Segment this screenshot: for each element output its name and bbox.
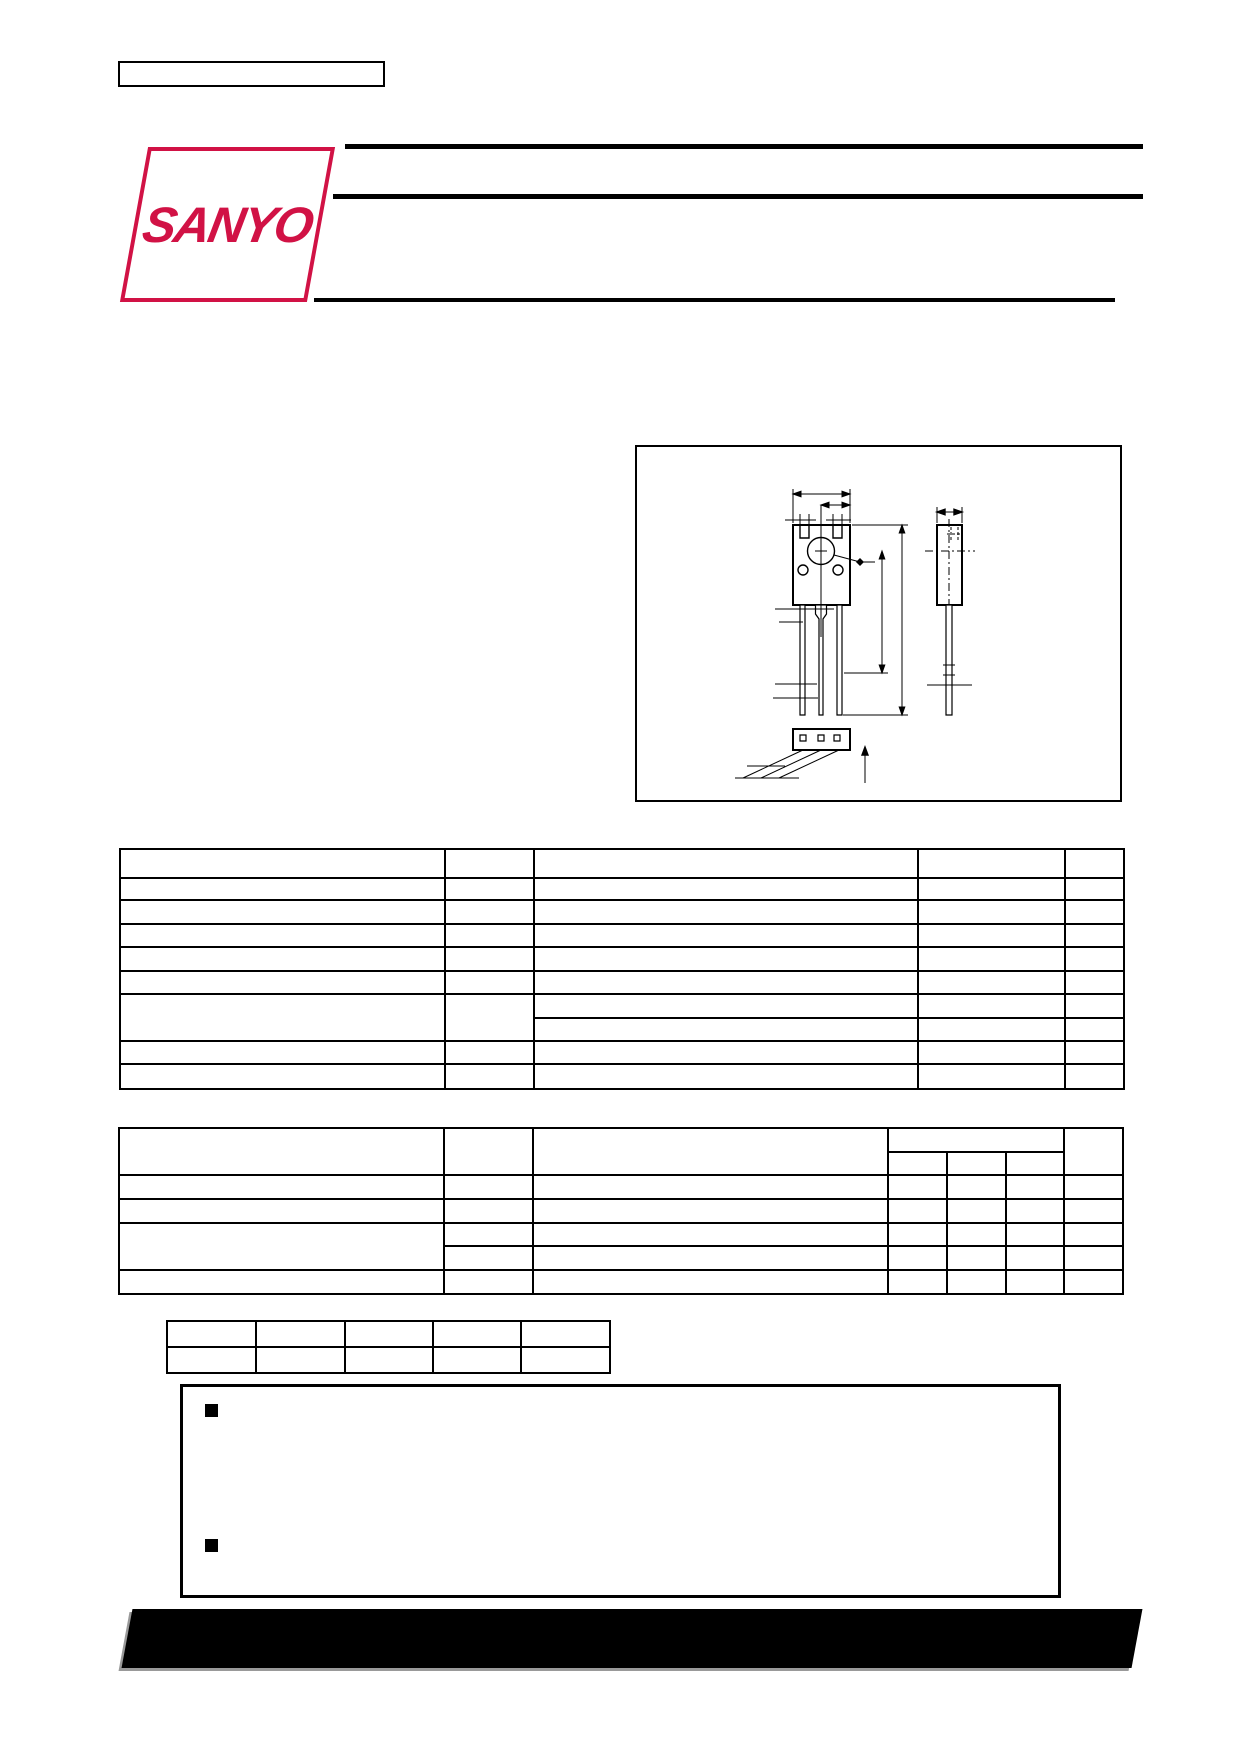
empty-cell (444, 1270, 533, 1294)
empty-cell (445, 1041, 534, 1064)
empty-cell (534, 924, 918, 947)
empty-cell (534, 900, 918, 924)
empty-cell (918, 971, 1065, 994)
empty-cell (888, 1246, 947, 1270)
empty-cell (167, 1347, 256, 1373)
empty-cell (534, 1041, 918, 1064)
table-row (120, 849, 1124, 878)
title-rule-bottom (314, 298, 1115, 302)
empty-cell (1065, 1018, 1124, 1041)
empty-cell (1064, 1246, 1123, 1270)
empty-cell (433, 1347, 521, 1373)
electrical-characteristics-table (118, 1127, 1124, 1295)
empty-cell (119, 1223, 444, 1270)
table-row (120, 1064, 1124, 1089)
empty-cell (167, 1321, 256, 1347)
empty-cell (1065, 849, 1124, 878)
note-bullet-icon (205, 1539, 218, 1552)
empty-cell (444, 1223, 533, 1246)
empty-cell (918, 900, 1065, 924)
package-pin1-leader (834, 555, 875, 566)
empty-cell (1065, 971, 1124, 994)
empty-cell (445, 900, 534, 924)
empty-cell (918, 1018, 1065, 1041)
empty-cell (120, 1064, 445, 1089)
max-ratings-table (119, 848, 1125, 1090)
empty-cell (1065, 900, 1124, 924)
empty-cell (918, 878, 1065, 900)
table-row (119, 1199, 1123, 1223)
empty-cell (534, 971, 918, 994)
empty-cell (119, 1270, 444, 1294)
empty-cell (947, 1223, 1006, 1246)
empty-cell (120, 947, 445, 971)
datasheet-page: SANYO (0, 0, 1240, 1754)
empty-cell (445, 994, 534, 1041)
note-bullet-icon (205, 1404, 218, 1417)
empty-cell (119, 1175, 444, 1199)
empty-cell (918, 849, 1065, 878)
empty-cell (445, 924, 534, 947)
empty-cell (1006, 1270, 1064, 1294)
table-row (119, 1175, 1123, 1199)
empty-cell (918, 924, 1065, 947)
empty-cell (120, 1041, 445, 1064)
empty-cell (533, 1246, 888, 1270)
sanyo-logo: SANYO (120, 147, 335, 302)
empty-cell (120, 924, 445, 947)
empty-cell (888, 1152, 947, 1175)
empty-cell (433, 1321, 521, 1347)
empty-cell (1064, 1175, 1123, 1199)
title-rule-middle (333, 194, 1143, 199)
empty-cell (120, 994, 445, 1041)
table-row (120, 900, 1124, 924)
empty-cell (533, 1270, 888, 1294)
empty-cell (534, 994, 918, 1018)
empty-cell (521, 1347, 610, 1373)
table-row (120, 947, 1124, 971)
empty-cell (445, 971, 534, 994)
empty-cell (947, 1270, 1006, 1294)
empty-cell (119, 1199, 444, 1223)
table-row (167, 1347, 610, 1373)
table-row (119, 1270, 1123, 1294)
empty-cell (1065, 1064, 1124, 1089)
classification-table (166, 1320, 611, 1374)
package-bottom-view (735, 729, 868, 783)
empty-cell (345, 1347, 433, 1373)
empty-cell (120, 900, 445, 924)
package-diagram (637, 447, 1120, 800)
empty-cell (1006, 1246, 1064, 1270)
empty-cell (918, 947, 1065, 971)
empty-cell (445, 947, 534, 971)
empty-cell (533, 1128, 888, 1175)
empty-cell (1064, 1199, 1123, 1223)
empty-cell (445, 878, 534, 900)
empty-cell (444, 1128, 533, 1175)
footer-bar (122, 1609, 1143, 1668)
table-row (120, 994, 1124, 1018)
empty-cell (918, 1041, 1065, 1064)
empty-cell (1064, 1223, 1123, 1246)
table-row (120, 924, 1124, 947)
empty-cell (1064, 1270, 1123, 1294)
table-row (119, 1223, 1123, 1246)
empty-cell (947, 1152, 1006, 1175)
empty-cell (533, 1175, 888, 1199)
empty-cell (521, 1321, 610, 1347)
empty-cell (534, 947, 918, 971)
table-row (120, 971, 1124, 994)
package-diagram-box (635, 445, 1122, 802)
empty-cell (120, 849, 445, 878)
empty-cell (444, 1175, 533, 1199)
empty-cell (1065, 994, 1124, 1018)
logo-text: SANYO (139, 200, 316, 250)
table-row (120, 878, 1124, 900)
empty-cell (445, 849, 534, 878)
empty-cell (444, 1246, 533, 1270)
empty-cell (888, 1223, 947, 1246)
ordering-number-box (118, 61, 385, 87)
empty-cell (534, 849, 918, 878)
empty-cell (947, 1175, 1006, 1199)
empty-cell (256, 1347, 345, 1373)
empty-cell (534, 1018, 918, 1041)
empty-cell (888, 1270, 947, 1294)
empty-cell (120, 878, 445, 900)
empty-cell (119, 1128, 444, 1175)
empty-cell (1064, 1128, 1123, 1175)
empty-cell (888, 1175, 947, 1199)
empty-cell (1006, 1152, 1064, 1175)
table-row (167, 1321, 610, 1347)
empty-cell (888, 1199, 947, 1223)
empty-cell (947, 1246, 1006, 1270)
empty-cell (444, 1199, 533, 1223)
empty-cell (256, 1321, 345, 1347)
table-header-row (119, 1128, 1123, 1152)
empty-cell (534, 878, 918, 900)
empty-cell (1006, 1199, 1064, 1223)
empty-cell (918, 994, 1065, 1018)
empty-cell (445, 1064, 534, 1089)
empty-cell (888, 1128, 1064, 1152)
title-rule-top (345, 144, 1143, 149)
empty-cell (1065, 1041, 1124, 1064)
empty-cell (1006, 1175, 1064, 1199)
empty-cell (534, 1064, 918, 1089)
empty-cell (918, 1064, 1065, 1089)
empty-cell (120, 971, 445, 994)
empty-cell (947, 1199, 1006, 1223)
empty-cell (533, 1223, 888, 1246)
empty-cell (1065, 878, 1124, 900)
note-box (180, 1384, 1061, 1598)
empty-cell (1006, 1223, 1064, 1246)
empty-cell (533, 1199, 888, 1223)
empty-cell (1065, 947, 1124, 971)
table-row (120, 1041, 1124, 1064)
empty-cell (1065, 924, 1124, 947)
empty-cell (345, 1321, 433, 1347)
